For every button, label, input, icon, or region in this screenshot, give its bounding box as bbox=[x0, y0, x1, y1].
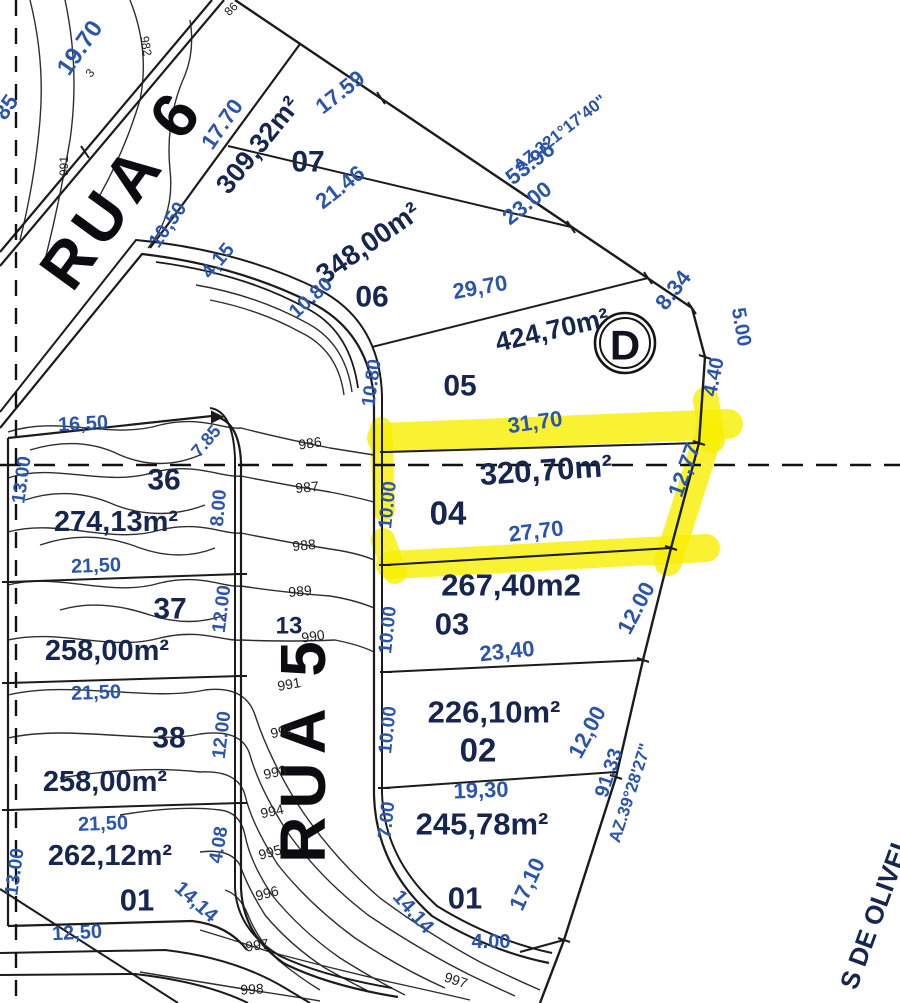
survey-point-letter: D bbox=[610, 322, 640, 369]
lot-number-01: 01 bbox=[448, 881, 482, 916]
lot-number-01-left: 01 bbox=[120, 883, 154, 918]
dim-label-7.85: 7.85 bbox=[187, 421, 225, 461]
dim-label-14,14: 14,14 bbox=[170, 877, 223, 927]
bottom-street-edge2 bbox=[0, 974, 248, 1003]
dim-label-7.00: 7.00 bbox=[375, 801, 400, 840]
lot-number-05: 05 bbox=[443, 370, 476, 403]
contour-label-987: 987 bbox=[295, 478, 320, 496]
contour-label-988: 988 bbox=[292, 536, 317, 554]
lot-02-area: 226,10m² bbox=[428, 695, 561, 730]
azimuth-label-1: AZ.321°17'40" bbox=[510, 91, 610, 175]
dim-label-10.00: 10.00 bbox=[375, 605, 401, 654]
dim-label-19,30: 19,30 bbox=[453, 777, 509, 804]
dim-label-4.00: 4.00 bbox=[472, 931, 511, 953]
dim-label-12.00: 12.00 bbox=[209, 584, 236, 634]
contour-label-998: 998 bbox=[240, 980, 264, 997]
lot-01-area: 245,78m² bbox=[416, 807, 549, 842]
lot-37-area: 258,00m² bbox=[45, 635, 169, 667]
lot-number-06: 06 bbox=[355, 281, 388, 314]
dim-label-21,50: 21,50 bbox=[71, 554, 122, 578]
left-block-south-edge bbox=[8, 921, 247, 950]
lot-number-13: 13 bbox=[276, 613, 303, 640]
lot-number-03: 03 bbox=[435, 607, 469, 642]
contour-label-997: 997 bbox=[244, 935, 270, 954]
dim-label-8.00: 8.00 bbox=[207, 489, 231, 528]
lot-03-area: 267,40m2 bbox=[441, 568, 581, 603]
dim-label-27,70: 27,70 bbox=[507, 515, 565, 547]
lot-number-02: 02 bbox=[460, 732, 497, 769]
lot-number-38: 38 bbox=[152, 722, 185, 755]
dim-label-4,15: 4,15 bbox=[197, 239, 239, 283]
dim-label-12,50: 12,50 bbox=[51, 921, 102, 946]
street-label-rua-5: RUA 5 bbox=[267, 633, 339, 863]
dim-label-5.00: 5.00 bbox=[727, 306, 755, 348]
lot-number-37: 37 bbox=[153, 593, 186, 626]
dim-label-10.00: 10.00 bbox=[375, 705, 401, 754]
dim-label-12.00: 12.00 bbox=[612, 578, 660, 638]
dim-label-17,10: 17,10 bbox=[504, 854, 550, 914]
contour-label-986: 986 bbox=[297, 433, 323, 452]
dim-label-17.59: 17.59 bbox=[311, 65, 370, 119]
contour-label-990: 990 bbox=[300, 626, 326, 645]
lot-38-area: 258,00m² bbox=[43, 766, 167, 798]
lot-number-36: 36 bbox=[147, 464, 180, 497]
dim-label-21,50: 21,50 bbox=[78, 812, 129, 836]
dim-label-23,40: 23,40 bbox=[478, 636, 535, 667]
divider-37-38 bbox=[8, 676, 241, 683]
site-plan-page: D RUA 6RUA 5309,32m²348,00m²424,70m²320,… bbox=[0, 0, 900, 1003]
highlight-stroke-left-bottom bbox=[383, 540, 395, 572]
lot-number-07: 07 bbox=[291, 146, 324, 179]
contour-label-989: 989 bbox=[288, 582, 313, 600]
dim-label-16,50: 16,50 bbox=[57, 412, 108, 437]
dim-label-4.08: 4.08 bbox=[205, 825, 232, 865]
lot-01-left-area: 262,12m² bbox=[48, 840, 172, 872]
site-plan-map: D RUA 6RUA 5309,32m²348,00m²424,70m²320,… bbox=[0, 0, 900, 1003]
dim-label-12.00: 12.00 bbox=[209, 710, 236, 760]
dim-label-19.70: 19.70 bbox=[52, 16, 109, 81]
map-labels: RUA 6RUA 5309,32m²348,00m²424,70m²320,70… bbox=[0, 0, 900, 998]
dim-label-21,50: 21,50 bbox=[71, 681, 122, 705]
lot-05-area: 424,70m² bbox=[492, 302, 611, 357]
contour-label-3: 3 bbox=[82, 66, 97, 80]
contour-label-982: 982 bbox=[137, 35, 154, 57]
lot-number-04: 04 bbox=[430, 495, 467, 532]
lot-04-area: 320,70m² bbox=[479, 448, 614, 492]
dim-label-85: 85 bbox=[0, 90, 23, 124]
boundary-street-label: S DE OLIVEI bbox=[834, 839, 900, 993]
lot-36-area: 274,13m² bbox=[54, 506, 178, 538]
dim-label-29,70: 29,70 bbox=[451, 270, 510, 304]
dim-label-14,14: 14,14 bbox=[388, 886, 438, 939]
dim-label-10.00: 10.00 bbox=[375, 480, 401, 529]
contour-label-991: 991 bbox=[57, 156, 71, 176]
dim-label-13.00: 13.00 bbox=[1, 847, 28, 897]
